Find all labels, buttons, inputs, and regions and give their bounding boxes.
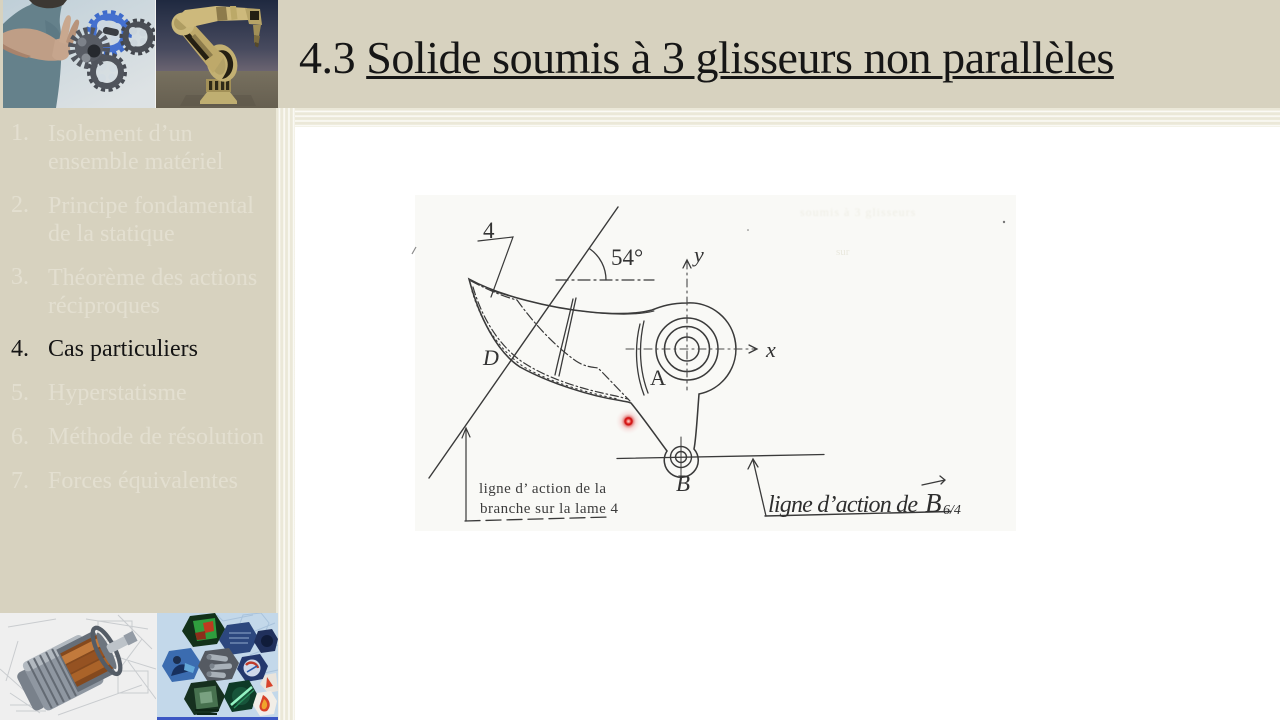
svg-text:y: y	[692, 242, 704, 267]
svg-text:D: D	[482, 345, 499, 370]
svg-text:x: x	[765, 337, 776, 362]
svg-text:B: B	[925, 488, 942, 518]
svg-text:4: 4	[483, 218, 495, 243]
svg-text:branche sur la lame 4: branche sur la lame 4	[480, 501, 619, 517]
svg-text:sur: sur	[836, 246, 850, 258]
svg-text:A: A	[650, 365, 666, 390]
svg-text:6/4: 6/4	[943, 503, 961, 518]
svg-text:B: B	[676, 471, 690, 496]
svg-text:ligne d’action de: ligne d’action de	[768, 492, 918, 518]
svg-text:ligne d’ action de la: ligne d’ action de la	[479, 481, 606, 497]
svg-text:54°: 54°	[611, 245, 643, 270]
svg-text:soumis à 3 glisseurs: soumis à 3 glisseurs	[800, 205, 916, 219]
